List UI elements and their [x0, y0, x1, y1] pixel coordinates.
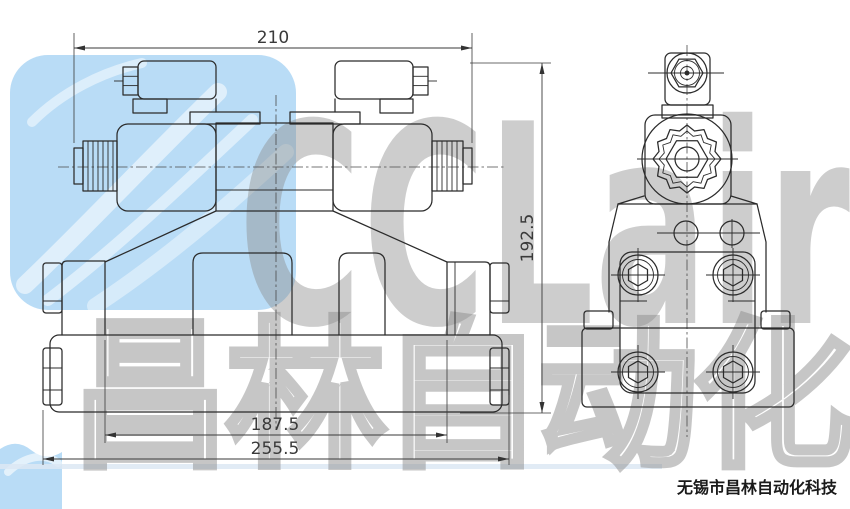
drawing-page: CCLair 昌林自动化 — [0, 0, 850, 509]
dimension-label-187-5: 187.5 — [251, 415, 300, 435]
company-name-text: 无锡市昌林自动化科技 — [677, 474, 837, 498]
dimension-label-210: 210 — [257, 28, 289, 48]
watermark-tile-fragment — [0, 444, 62, 509]
valve-technical-drawing: CCLair 昌林自动化 — [0, 0, 850, 509]
connector-pin — [685, 71, 690, 76]
clamp-plate-left-lower — [43, 348, 62, 405]
dimension-label-255-5: 255.5 — [251, 439, 300, 459]
dimension-label-192-5: 192.5 — [518, 214, 538, 263]
